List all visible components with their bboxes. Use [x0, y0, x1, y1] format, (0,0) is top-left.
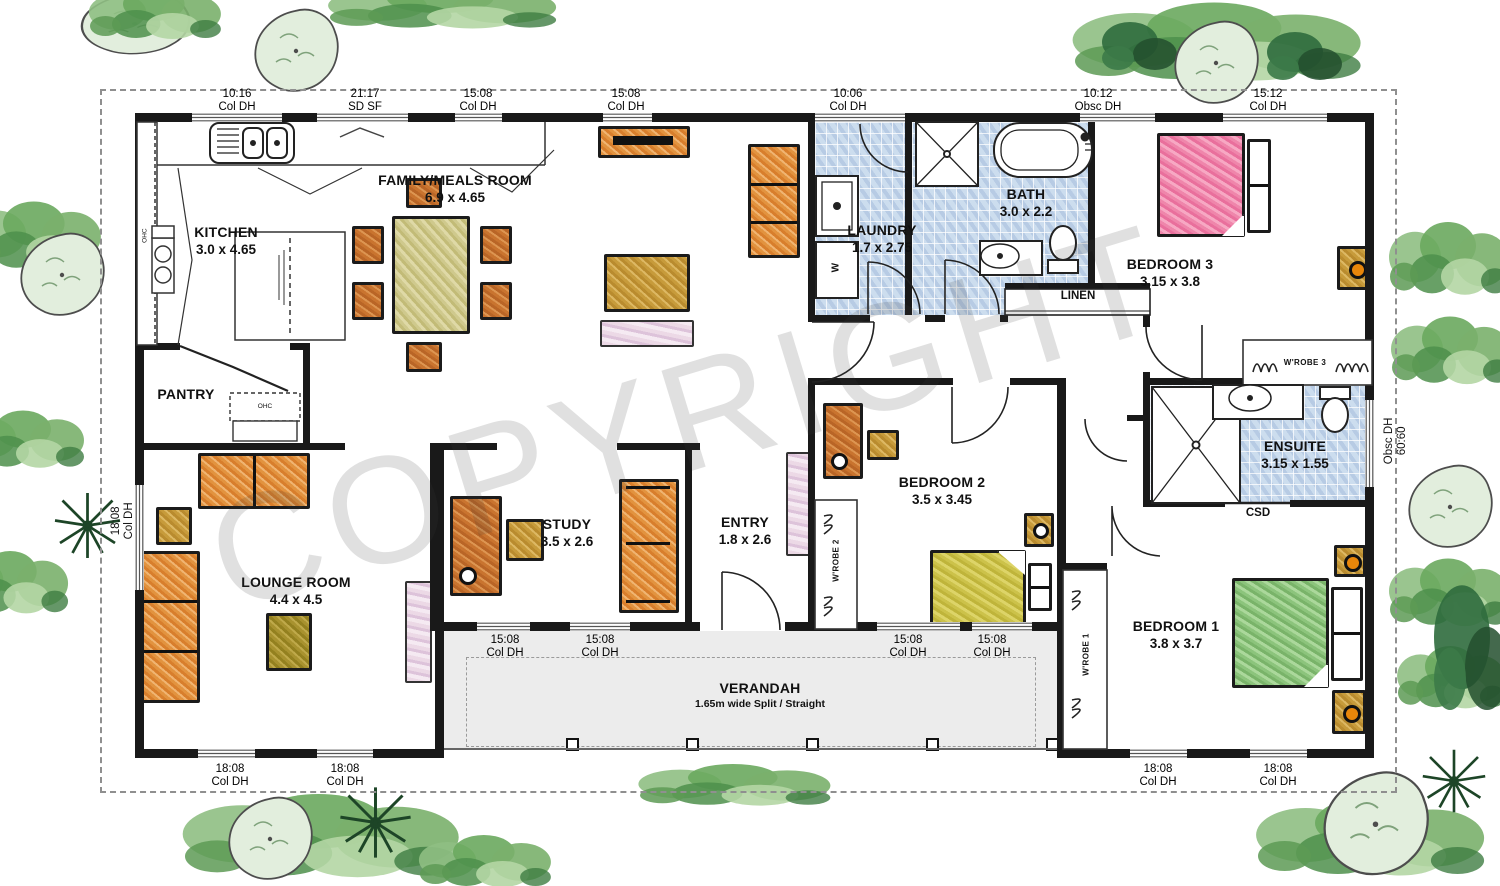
bedroom2-door	[952, 387, 1008, 443]
window	[877, 622, 960, 631]
window	[1080, 113, 1155, 122]
window-label: 10:12Obsc DH	[1075, 88, 1122, 114]
room-label-bedroom1: BEDROOM 13.8 x 3.7	[1133, 618, 1220, 652]
window	[455, 113, 502, 122]
window-label: 10:16Col DH	[218, 88, 255, 114]
window-label: 15:08Col DH	[486, 634, 523, 660]
window-label: 21:17SD SF	[348, 88, 382, 114]
window	[477, 622, 530, 631]
window-label: 15:08Col DH	[459, 88, 496, 114]
window-label: 15:12Col DH	[1249, 88, 1286, 114]
bedroom3-door	[1146, 325, 1202, 380]
window-label-left: 18:08Col DH	[110, 486, 136, 556]
ohc-pantry-label: OHC	[258, 403, 272, 410]
window	[570, 622, 630, 631]
window	[317, 749, 373, 758]
linen-label: LINEN	[1061, 290, 1096, 302]
room-label-pantry: PANTRY	[157, 386, 214, 404]
window-label: 18:08Col DH	[1139, 763, 1176, 789]
room-label-bedroom3: BEDROOM 33.15 x 3.8	[1127, 256, 1214, 290]
window	[1250, 749, 1307, 758]
window-label: 10:06Col DH	[829, 88, 866, 114]
room-label-ensuite: ENSUITE3.15 x 1.55	[1261, 438, 1329, 472]
pantry-cupboards	[230, 393, 300, 441]
window-label: 15:08Col DH	[581, 634, 618, 660]
kitchen-sink	[210, 123, 294, 163]
bath-toilet-tank	[1048, 260, 1078, 273]
hall-stub-door	[1085, 419, 1127, 461]
window-label: 15:08Col DH	[889, 634, 926, 660]
window	[135, 485, 144, 590]
doors	[180, 124, 1290, 630]
room-label-laundry: LAUNDRY1.7 x 2.75	[847, 222, 916, 256]
hall-door	[812, 322, 874, 382]
washer-label: W	[830, 256, 841, 280]
window	[198, 749, 255, 758]
room-label-bedroom2: BEDROOM 23.5 x 3.45	[899, 474, 986, 508]
csd-label: CSD	[1246, 507, 1270, 519]
laundry-exterior-door	[860, 124, 908, 172]
entry-door	[722, 572, 780, 630]
wrobe1-label: W'ROBE 1	[1083, 627, 1092, 681]
room-label-kitchen: KITCHEN3.0 x 4.65	[194, 224, 258, 258]
bath-toilet	[1050, 226, 1076, 260]
window-label: 18:08Col DH	[211, 763, 248, 789]
window	[815, 113, 905, 122]
room-label-study: STUDY3.5 x 2.6	[541, 516, 594, 550]
laundry-door	[868, 262, 920, 314]
room-label-verandah: VERANDAH1.65m wide Split / Straight	[695, 680, 825, 710]
ensuite-toilet	[1322, 398, 1348, 432]
window	[1365, 400, 1374, 487]
window	[1223, 113, 1327, 122]
room-label-bath: BATH3.0 x 2.2	[1000, 186, 1053, 220]
window	[972, 622, 1032, 631]
bedroom1-door	[1112, 506, 1160, 556]
room-label-family: FAMILY/MEALS ROOM6.9 x 4.65	[378, 172, 532, 206]
window-label: 18:08Col DH	[326, 763, 363, 789]
window-label: 15:08Col DH	[973, 634, 1010, 660]
room-label-entry: ENTRY1.8 x 2.6	[719, 514, 772, 548]
break-mark	[340, 128, 384, 137]
ohc-kitchen-label: OHC	[141, 224, 148, 248]
floor-plan-page: KITCHEN3.0 x 4.65 FAMILY/MEALS ROOM6.9 x…	[0, 0, 1500, 886]
pantry-door	[180, 346, 288, 391]
window	[603, 113, 652, 122]
window-label-right: Obsc DH60:60	[1383, 405, 1409, 477]
room-label-lounge: LOUNGE ROOM4.4 x 4.5	[241, 574, 351, 608]
wrobe3-label: W'ROBE 3	[1284, 358, 1326, 367]
window	[1130, 749, 1187, 758]
window-label: 15:08Col DH	[607, 88, 644, 114]
wrobe2-label: W'ROBE 2	[833, 535, 842, 585]
window-label: 18:08Col DH	[1259, 763, 1296, 789]
window	[192, 113, 282, 122]
window	[317, 113, 408, 122]
